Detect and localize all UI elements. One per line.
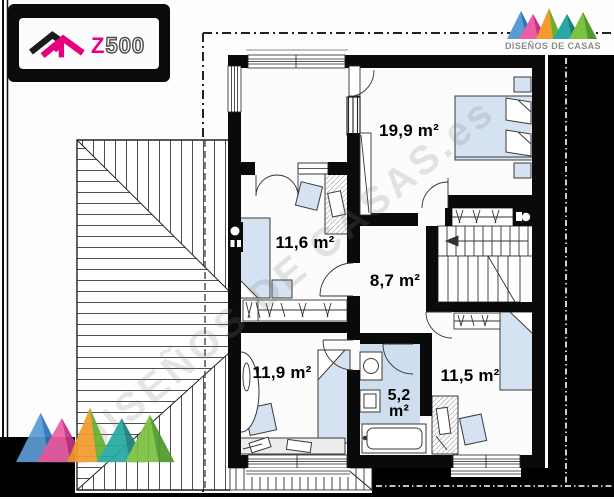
z500-roof-icon — [27, 27, 85, 61]
room-area-label: 8,7 m² — [370, 271, 420, 291]
room-area-label: 11,9 m² — [252, 363, 311, 383]
mountains-icon — [507, 6, 599, 40]
z500-logo-panel: Z500 — [19, 18, 159, 69]
floor-plan-image: DISEÑOS DE CASAS.es Z500 DISEÑOS DE CASA… — [0, 0, 614, 499]
z500-logo-text: Z500 — [91, 33, 145, 59]
bathroom-area-unit: m² — [388, 404, 411, 420]
room-area-label: 19,9 m² — [379, 121, 439, 141]
room-area-label: 5,2m² — [388, 388, 411, 420]
bathroom-area-value: 5,2 — [388, 388, 411, 404]
disenos-logo-top: DISEÑOS DE CASAS — [503, 6, 603, 51]
room-area-label: 11,5 m² — [440, 366, 499, 386]
staircase — [438, 226, 533, 302]
disenos-logo-name: DISEÑOS DE CASAS — [503, 41, 603, 51]
disenos-logo-bottom — [16, 386, 178, 487]
mountains-icon — [16, 386, 178, 482]
room-area-label: 11,6 m² — [275, 233, 334, 253]
frame-lines — [3, 0, 8, 493]
z500-logo: Z500 — [8, 4, 170, 82]
